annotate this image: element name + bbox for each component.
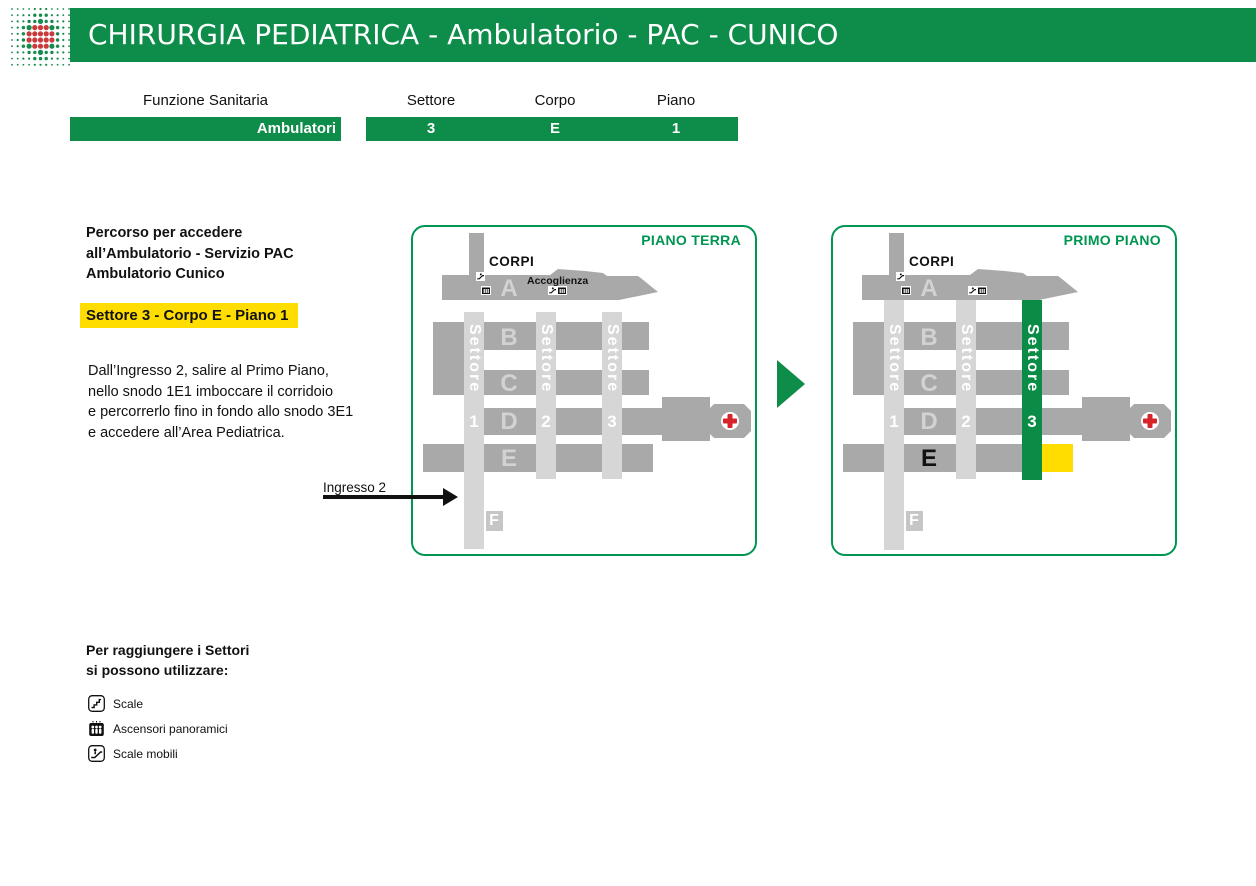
settore-value: 3 — [366, 117, 496, 141]
corpo-c-label: C — [914, 370, 944, 398]
legend-item-panoramic-elevators: Ascensori panoramici — [88, 720, 105, 738]
sector-2-strip: Settore 2 — [536, 312, 556, 479]
corpo-value: E — [490, 117, 620, 141]
legend-item-escalators: Scale mobili — [88, 745, 105, 763]
map-primo-piano: PRIMO PIANO CORPI Settore 1 — [831, 225, 1177, 556]
corpo-e-label: E — [494, 445, 524, 473]
sector-strip-number: 3 — [1022, 412, 1042, 432]
destination-area-highlight — [1042, 444, 1073, 472]
sector-strip-number: 1 — [464, 412, 484, 432]
corpo-a-label: A — [914, 275, 944, 303]
escalator-icon — [548, 286, 557, 295]
corpi-label: CORPI — [489, 254, 534, 269]
sector-3-strip-highlighted: Settore 3 — [1022, 300, 1042, 480]
legend-item-label: Scale mobili — [113, 747, 178, 761]
col-header-settore: Settore — [366, 92, 496, 109]
entrance-arrow — [323, 495, 445, 499]
sector-strip-word: Settore — [537, 324, 555, 393]
escalator-icon — [896, 272, 905, 281]
page-title: CHIRURGIA PEDIATRICA - Ambulatorio - PAC… — [70, 8, 1256, 62]
sector-2-strip: Settore 2 — [956, 300, 976, 479]
piano-value: 1 — [611, 117, 741, 141]
sector-strip-word: Settore — [957, 324, 975, 393]
panoramic-elevator-icon — [88, 720, 105, 737]
corpo-f-label: F — [479, 512, 509, 530]
corpo-e-label-highlighted: E — [914, 445, 944, 473]
corpo-d-label: D — [914, 408, 944, 436]
legend-heading-line: si possono utilizzare: — [86, 660, 249, 680]
route-description-line: nello snodo 1E1 imboccare il corridoio — [88, 382, 353, 403]
page: CHIRURGIA PEDIATRICA - Ambulatorio - PAC… — [0, 0, 1256, 886]
settore-corpo-piano-cell: 3 E 1 — [366, 117, 738, 141]
corpo-b-label: B — [914, 324, 944, 352]
route-description-line: e percorrerlo fino in fondo allo snodo 3… — [88, 402, 353, 423]
corpi-label: CORPI — [909, 254, 954, 269]
sector-3-strip: Settore 3 — [602, 312, 622, 479]
col-header-funzione: Funzione Sanitaria — [70, 92, 341, 109]
corpo-a-building-shape — [833, 227, 1093, 307]
funzione-value-cell: Ambulatori — [70, 117, 341, 141]
legend-item-stairs: Scale — [88, 695, 105, 713]
elevator-icon — [901, 286, 911, 295]
emergency-wing-shape — [1127, 404, 1171, 438]
sector-strip-number: 2 — [956, 412, 976, 432]
route-intro: Percorso per accedere all’Ambulatorio - … — [86, 223, 294, 285]
corpo-d-label: D — [494, 408, 524, 436]
sector-strip-word: Settore — [885, 324, 903, 393]
escalator-icon — [968, 286, 977, 295]
col-header-corpo: Corpo — [490, 92, 620, 109]
route-intro-line: all’Ambulatorio - Servizio PAC — [86, 244, 294, 265]
elevator-icon — [481, 286, 491, 295]
escalator-icon — [88, 745, 105, 762]
escalator-icon — [476, 272, 485, 281]
sector-strip-number: 3 — [602, 412, 622, 432]
hospital-dots-logo — [4, 2, 74, 72]
route-intro-line: Percorso per accedere — [86, 223, 294, 244]
elevator-icon — [557, 286, 567, 295]
sector-strip-word: Settore — [603, 324, 621, 393]
sector-strip-word: Settore — [1023, 324, 1041, 393]
funzione-value: Ambulatori — [257, 117, 336, 141]
route-description-line: e accedere all’Area Pediatrica. — [88, 423, 353, 444]
corpo-a-label: A — [494, 275, 524, 303]
sector-strip-word: Settore — [465, 324, 483, 393]
corpo-c-label: C — [494, 370, 524, 398]
corpo-b-label: B — [494, 324, 524, 352]
route-highlight: Settore 3 - Corpo E - Piano 1 — [80, 303, 298, 328]
legend-heading-line: Per raggiungere i Settori — [86, 640, 249, 660]
route-description: Dall’Ingresso 2, salire al Primo Piano, … — [88, 361, 353, 443]
left-wing-block — [433, 322, 464, 395]
legend-item-label: Scale — [113, 697, 143, 711]
map-piano-terra: PIANO TERRA CORPI Accoglienza Settore — [411, 225, 757, 556]
legend-item-label: Ascensori panoramici — [113, 722, 228, 736]
elevator-icon — [977, 286, 987, 295]
entrance-arrow-head — [443, 488, 458, 506]
col-header-piano: Piano — [611, 92, 741, 109]
sector-strip-number: 2 — [536, 412, 556, 432]
corpo-a-building-shape — [413, 227, 673, 307]
route-description-line: Dall’Ingresso 2, salire al Primo Piano, — [88, 361, 353, 382]
corpo-f-label: F — [899, 512, 929, 530]
next-floor-arrow-icon — [777, 360, 805, 408]
legend-heading: Per raggiungere i Settori si possono uti… — [86, 640, 249, 680]
route-intro-line: Ambulatorio Cunico — [86, 264, 294, 285]
left-wing-block — [853, 322, 884, 395]
title-bar: CHIRURGIA PEDIATRICA - Ambulatorio - PAC… — [70, 8, 1256, 62]
emergency-wing-shape — [707, 404, 751, 438]
corridor-block — [1082, 397, 1130, 441]
sector-strip-number: 1 — [884, 412, 904, 432]
corridor-block — [662, 397, 710, 441]
entrance-label: Ingresso 2 — [323, 480, 386, 495]
stairs-icon — [88, 695, 105, 712]
route-highlight-text: Settore 3 - Corpo E - Piano 1 — [80, 303, 298, 328]
